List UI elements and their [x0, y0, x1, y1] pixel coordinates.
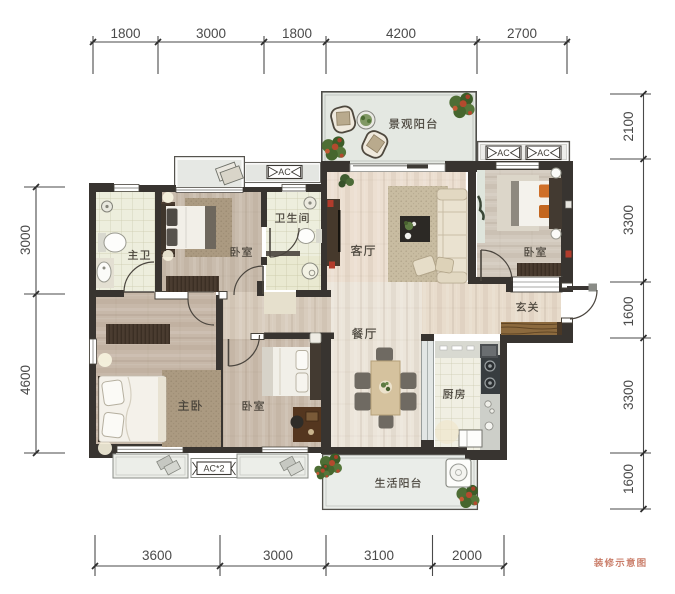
svg-text:2100: 2100 [621, 111, 636, 141]
svg-text:1800: 1800 [110, 26, 140, 41]
svg-text:1600: 1600 [621, 464, 636, 494]
svg-text:1600: 1600 [621, 296, 636, 326]
svg-text:3100: 3100 [364, 548, 394, 563]
svg-text:AC*2: AC*2 [203, 464, 224, 474]
svg-text:3300: 3300 [621, 380, 636, 410]
svg-text:3000: 3000 [196, 26, 226, 41]
svg-text:3300: 3300 [621, 205, 636, 235]
svg-text:3600: 3600 [142, 548, 172, 563]
svg-text:1800: 1800 [282, 26, 312, 41]
svg-text:2000: 2000 [452, 548, 482, 563]
svg-text:AC: AC [278, 167, 291, 177]
svg-text:AC: AC [497, 148, 510, 158]
svg-text:2700: 2700 [507, 26, 537, 41]
svg-text:AC: AC [537, 148, 550, 158]
svg-text:4200: 4200 [386, 26, 416, 41]
svg-text:3000: 3000 [18, 225, 33, 255]
svg-text:4600: 4600 [18, 365, 33, 395]
svg-text:3000: 3000 [263, 548, 293, 563]
